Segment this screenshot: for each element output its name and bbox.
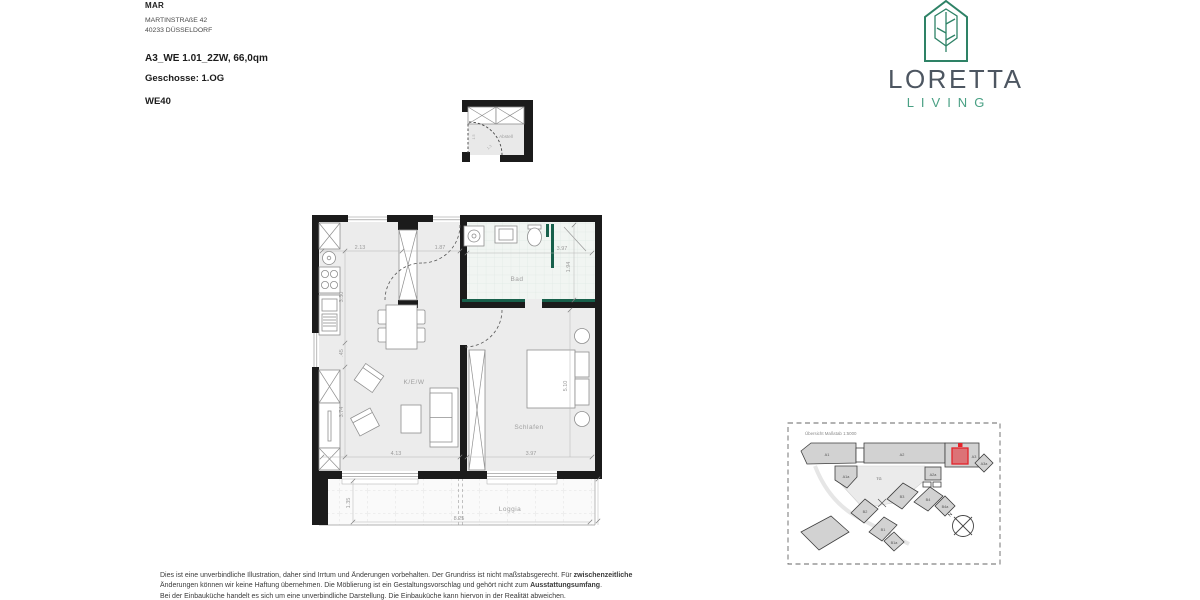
nightstand [575,412,590,427]
label-a3: A3 [972,455,977,459]
storage-dim-height: 1.5 [472,135,476,140]
dim-kitchen-width: 2.13 [355,245,366,251]
logo-wordmark: LORETTA [888,64,1004,95]
window-sill [487,479,557,484]
label-b3: B3 [900,495,905,499]
loretta-logo: LORETTA LIVING [888,0,1004,110]
disclaimer-line-3: Bei der Einbauküche handelt es sich um e… [160,592,760,600]
label-a2: A2 [900,453,905,457]
label-b4: B4 [926,498,931,502]
dim-sleeping-height: 5.10 [563,381,569,392]
label-b2: B2 [863,510,868,514]
site-plan-overview: Übersicht Maßstab 1:5000 [787,422,1001,565]
kitchen-counter [319,223,340,335]
storage-detail-plan: Abstell 1.5 1.3 [462,100,533,170]
bedroom-wardrobe [469,350,485,470]
dim-entry-width: 1.87 [435,245,446,251]
window-sill [342,479,418,484]
letterhead: MAR MARTINSTRAßE 42 40233 DÜSSELDORF A3_… [145,0,268,107]
bath-fixtures [464,225,542,246]
dim-bath-height: 1.94 [566,262,572,273]
unit-code: WE40 [145,96,268,107]
company-name: MAR [145,1,268,10]
label-a1: A1 [825,453,830,457]
dim-loggia-depth: 1.35 [346,498,352,509]
sofa [430,388,458,447]
nightstand [575,329,590,344]
dim-sleeping-width: 3.97 [526,451,537,457]
house-leaf-icon [924,0,968,62]
storage-room-label: Abstell [499,134,513,139]
disclaimer: Dies ist eine unverbindliche Illustratio… [160,571,760,600]
kitchen-stove [319,267,340,293]
unit-title: A3_WE 1.01_2ZW, 66,0qm [145,53,268,64]
room-label-living: K/E/W [404,379,425,386]
toilet [528,228,542,246]
label-b1: B1 [881,528,886,532]
label-a2a: A2a [930,473,938,477]
storage-cabinets [468,107,524,124]
entry-wardrobe [399,230,417,300]
dim-bath-width: 3.97 [557,246,568,252]
disclaimer-line-1: Dies ist eine unverbindliche Illustratio… [160,571,760,581]
address-line-1: MARTINSTRAßE 42 [145,16,268,26]
living-wall-wardrobe [319,370,340,470]
label-b4a: B4a [942,505,950,509]
room-label-sleeping: Schlafen [514,424,543,431]
label-b1a: B1a [891,541,899,545]
dim-wall-offset: .45 [339,349,345,357]
dim-loggia-width: 8.25 [454,516,465,522]
bath-door-opening [525,299,542,308]
company-address: MARTINSTRAßE 42 40233 DÜSSELDORF [145,16,268,36]
site-plan-title: Übersicht Maßstab 1:5000 [805,431,857,436]
label-tg: TG [876,477,881,481]
logo-subtitle: LIVING [888,95,1004,110]
building-a2 [864,443,945,463]
coffee-table [401,405,421,433]
floor-label: Geschosse: 1.OG [145,73,268,84]
room-label-bath: Bad [510,276,523,283]
address-line-2: 40233 DÜSSELDORF [145,26,268,36]
dim-living-width: 4.13 [391,451,402,457]
room-label-loggia: Loggia [499,506,522,513]
label-a3a: A3a [981,462,989,466]
highlighted-unit-marker [958,443,963,447]
dim-kitchen-height: 3.30 [339,292,345,303]
label-a1a: A1a [843,475,851,479]
dim-living-height: 3.74 [339,407,345,418]
floorplan-sheet: MAR MARTINSTRAßE 42 40233 DÜSSELDORF A3_… [0,0,1200,600]
disclaimer-line-2: Änderungen können wir keine Haftung über… [160,581,760,591]
highlighted-unit [952,448,968,464]
apartment-floor-plan: 2.13 1.87 3.30 3.97 1.94 .45 3.74 4.13 3… [312,215,602,532]
